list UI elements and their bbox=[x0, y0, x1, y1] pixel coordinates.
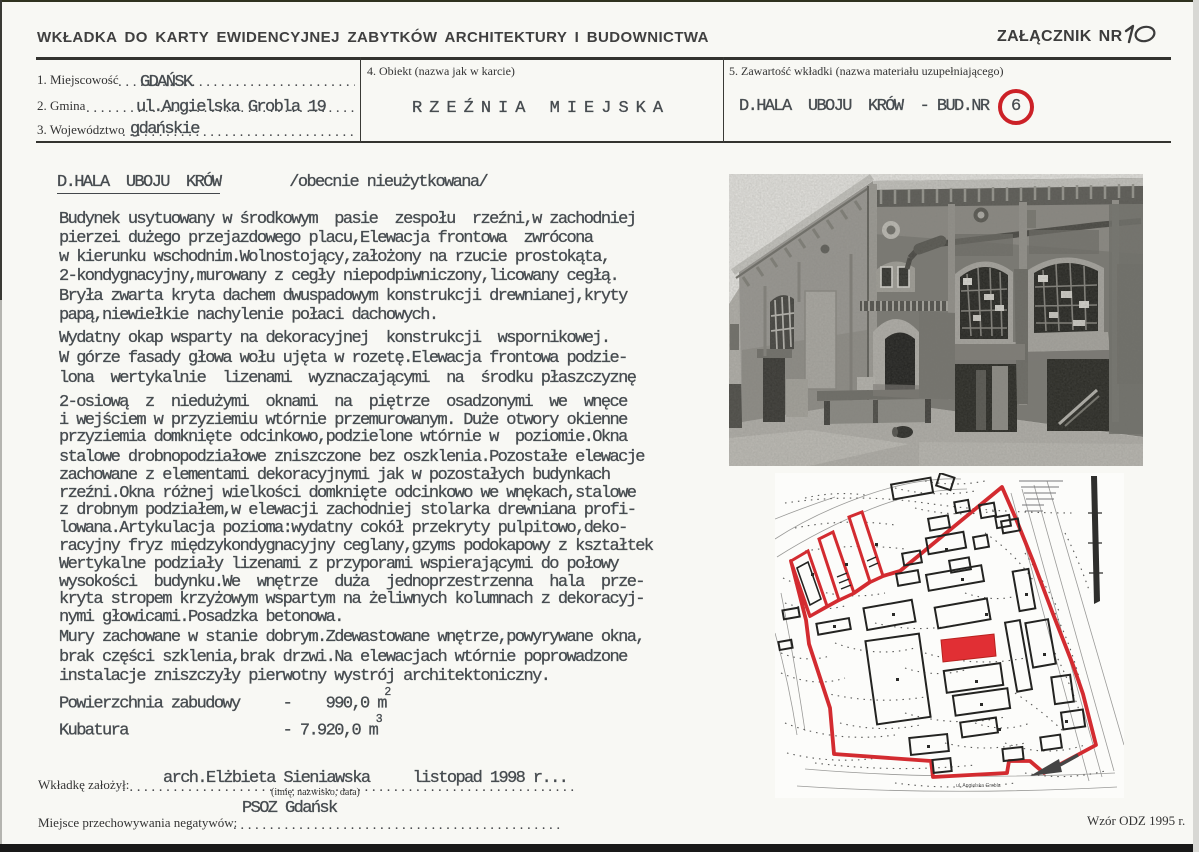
svg-text:ul. Angielska Grobla: ul. Angielska Grobla bbox=[956, 783, 1001, 789]
